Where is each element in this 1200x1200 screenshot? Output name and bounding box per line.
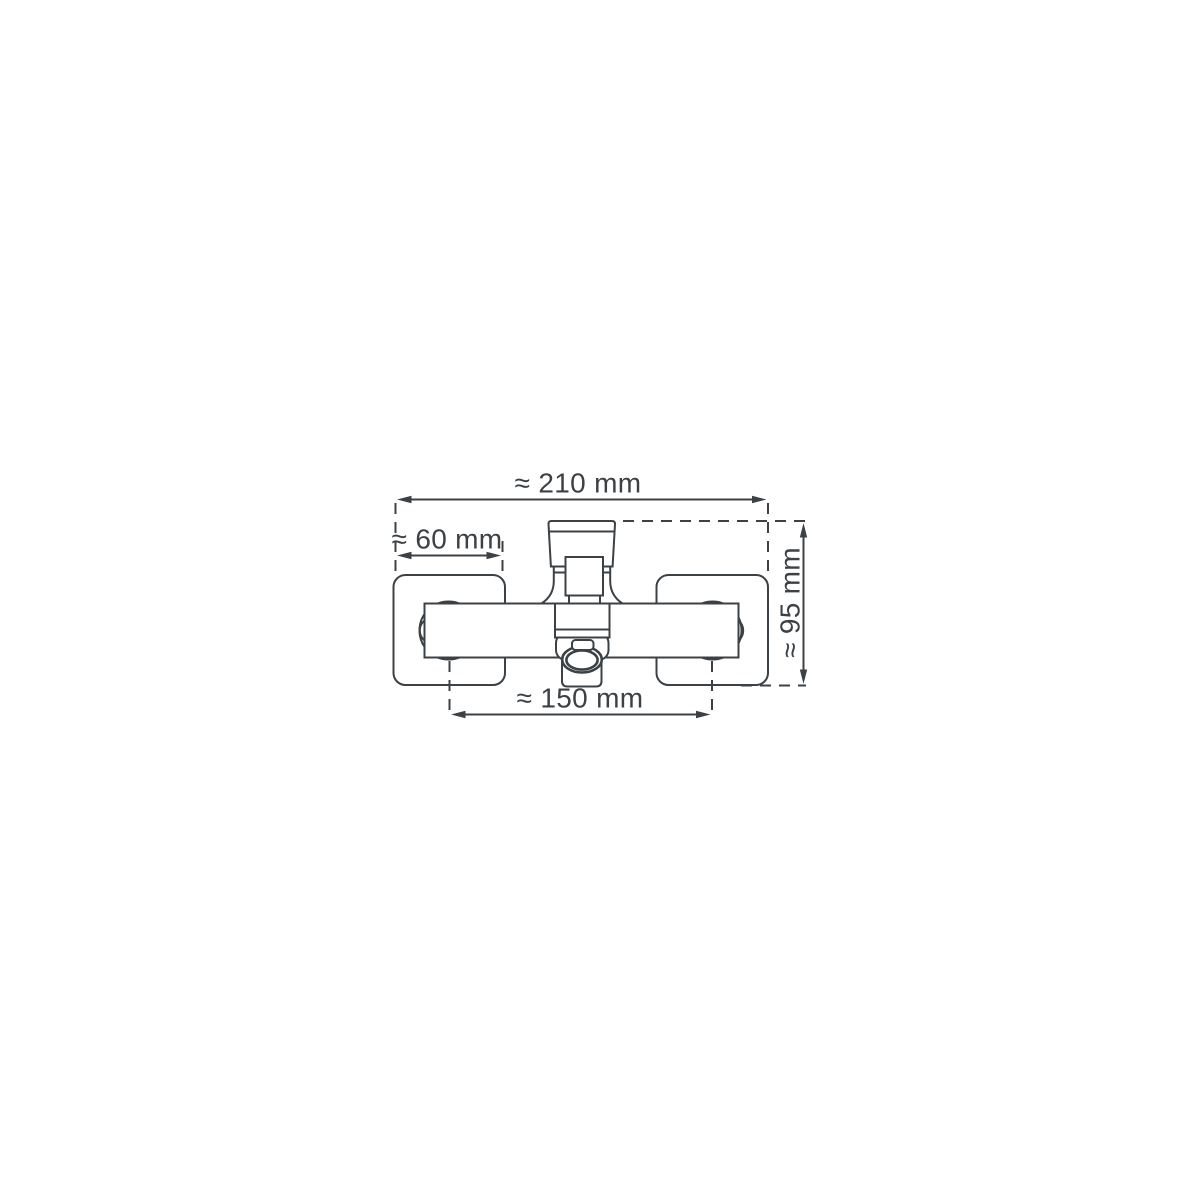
aerator-top-nub: [572, 640, 594, 650]
dimension-overall-width: ≈ 210 mm: [397, 468, 767, 504]
arrowhead-right: [752, 496, 767, 503]
arrowhead-left: [451, 711, 466, 718]
dimension-diagram-page: ≈ 210 mm ≈ 60 mm ≈ 150 mm ≈ 9: [0, 0, 1200, 1200]
arrowhead-bottom: [800, 670, 807, 685]
right-shoulder-flare: [603, 567, 623, 604]
dim-plate-width-label: ≈ 60 mm: [392, 524, 503, 555]
left-shoulder-flare: [542, 567, 566, 604]
valve-block: [555, 604, 610, 638]
faucet-dimension-diagram: ≈ 210 mm ≈ 60 mm ≈ 150 mm ≈ 9: [0, 0, 1200, 1200]
arrowhead-right: [696, 711, 711, 718]
dimension-wall-plate-width: ≈ 60 mm: [392, 524, 503, 560]
dim-overall-width-label: ≈ 210 mm: [515, 468, 642, 499]
dimension-body-height: ≈ 95 mm: [775, 523, 808, 684]
arrowhead-top: [800, 523, 807, 538]
dim-connection-centers-label: ≈ 150 mm: [517, 683, 644, 714]
dimension-connection-centers: ≈ 150 mm: [451, 683, 711, 719]
arrowhead-left: [397, 496, 412, 503]
dim-body-height-label: ≈ 95 mm: [775, 547, 806, 658]
lever-handle: [566, 557, 604, 596]
